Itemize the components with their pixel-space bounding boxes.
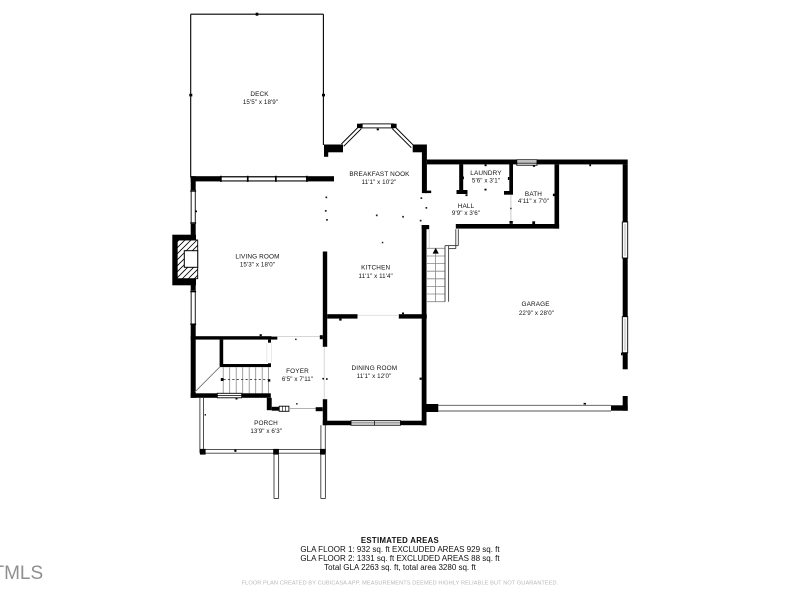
- svg-text:11'1" x 11'4": 11'1" x 11'4": [359, 273, 393, 280]
- svg-text:22'9" x 28'0": 22'9" x 28'0": [519, 310, 554, 317]
- svg-text:KITCHEN: KITCHEN: [361, 265, 390, 272]
- svg-text:11'1" x 10'2": 11'1" x 10'2": [362, 179, 397, 186]
- svg-text:15'5" x 18'9": 15'5" x 18'9": [243, 99, 278, 106]
- svg-text:HALL: HALL: [458, 203, 475, 210]
- svg-text:LAUNDRY: LAUNDRY: [470, 170, 502, 177]
- svg-text:DECK: DECK: [250, 91, 269, 98]
- svg-text:15'3" x 18'0": 15'3" x 18'0": [240, 262, 275, 269]
- svg-text:LIVING ROOM: LIVING ROOM: [235, 253, 279, 260]
- svg-text:4'11" x 7'0": 4'11" x 7'0": [518, 198, 549, 205]
- svg-text:Total GLA 2263 sq. ft, total a: Total GLA 2263 sq. ft, total area 3280 s…: [324, 563, 476, 572]
- svg-text:GLA FLOOR 1: 932 sq. ft EXCLUD: GLA FLOOR 1: 932 sq. ft EXCLUDED AREAS 9…: [300, 545, 500, 554]
- svg-text:BATH: BATH: [525, 191, 542, 198]
- svg-text:DINING ROOM: DINING ROOM: [352, 365, 398, 372]
- svg-text:13'9" x 6'3": 13'9" x 6'3": [250, 428, 282, 435]
- svg-text:TMLS: TMLS: [0, 563, 43, 584]
- svg-text:GARAGE: GARAGE: [521, 301, 549, 308]
- svg-text:ESTIMATED AREAS: ESTIMATED AREAS: [361, 536, 439, 545]
- svg-text:FLOOR PLAN CREATED BY CUBICASA: FLOOR PLAN CREATED BY CUBICASA APP. MEAS…: [242, 581, 559, 587]
- svg-text:BREAKFAST NOOK: BREAKFAST NOOK: [349, 171, 410, 178]
- svg-text:9'9" x 3'6": 9'9" x 3'6": [452, 210, 480, 217]
- svg-text:PORCH: PORCH: [254, 420, 278, 427]
- svg-text:FOYER: FOYER: [286, 368, 309, 375]
- svg-text:11'1" x 12'0": 11'1" x 12'0": [357, 373, 392, 380]
- svg-text:GLA FLOOR 2: 1331 sq. ft EXCLU: GLA FLOOR 2: 1331 sq. ft EXCLUDED AREAS …: [300, 554, 500, 563]
- svg-text:6'5" x 7'11": 6'5" x 7'11": [282, 376, 313, 383]
- svg-text:5'6" x 3'1": 5'6" x 3'1": [472, 178, 500, 185]
